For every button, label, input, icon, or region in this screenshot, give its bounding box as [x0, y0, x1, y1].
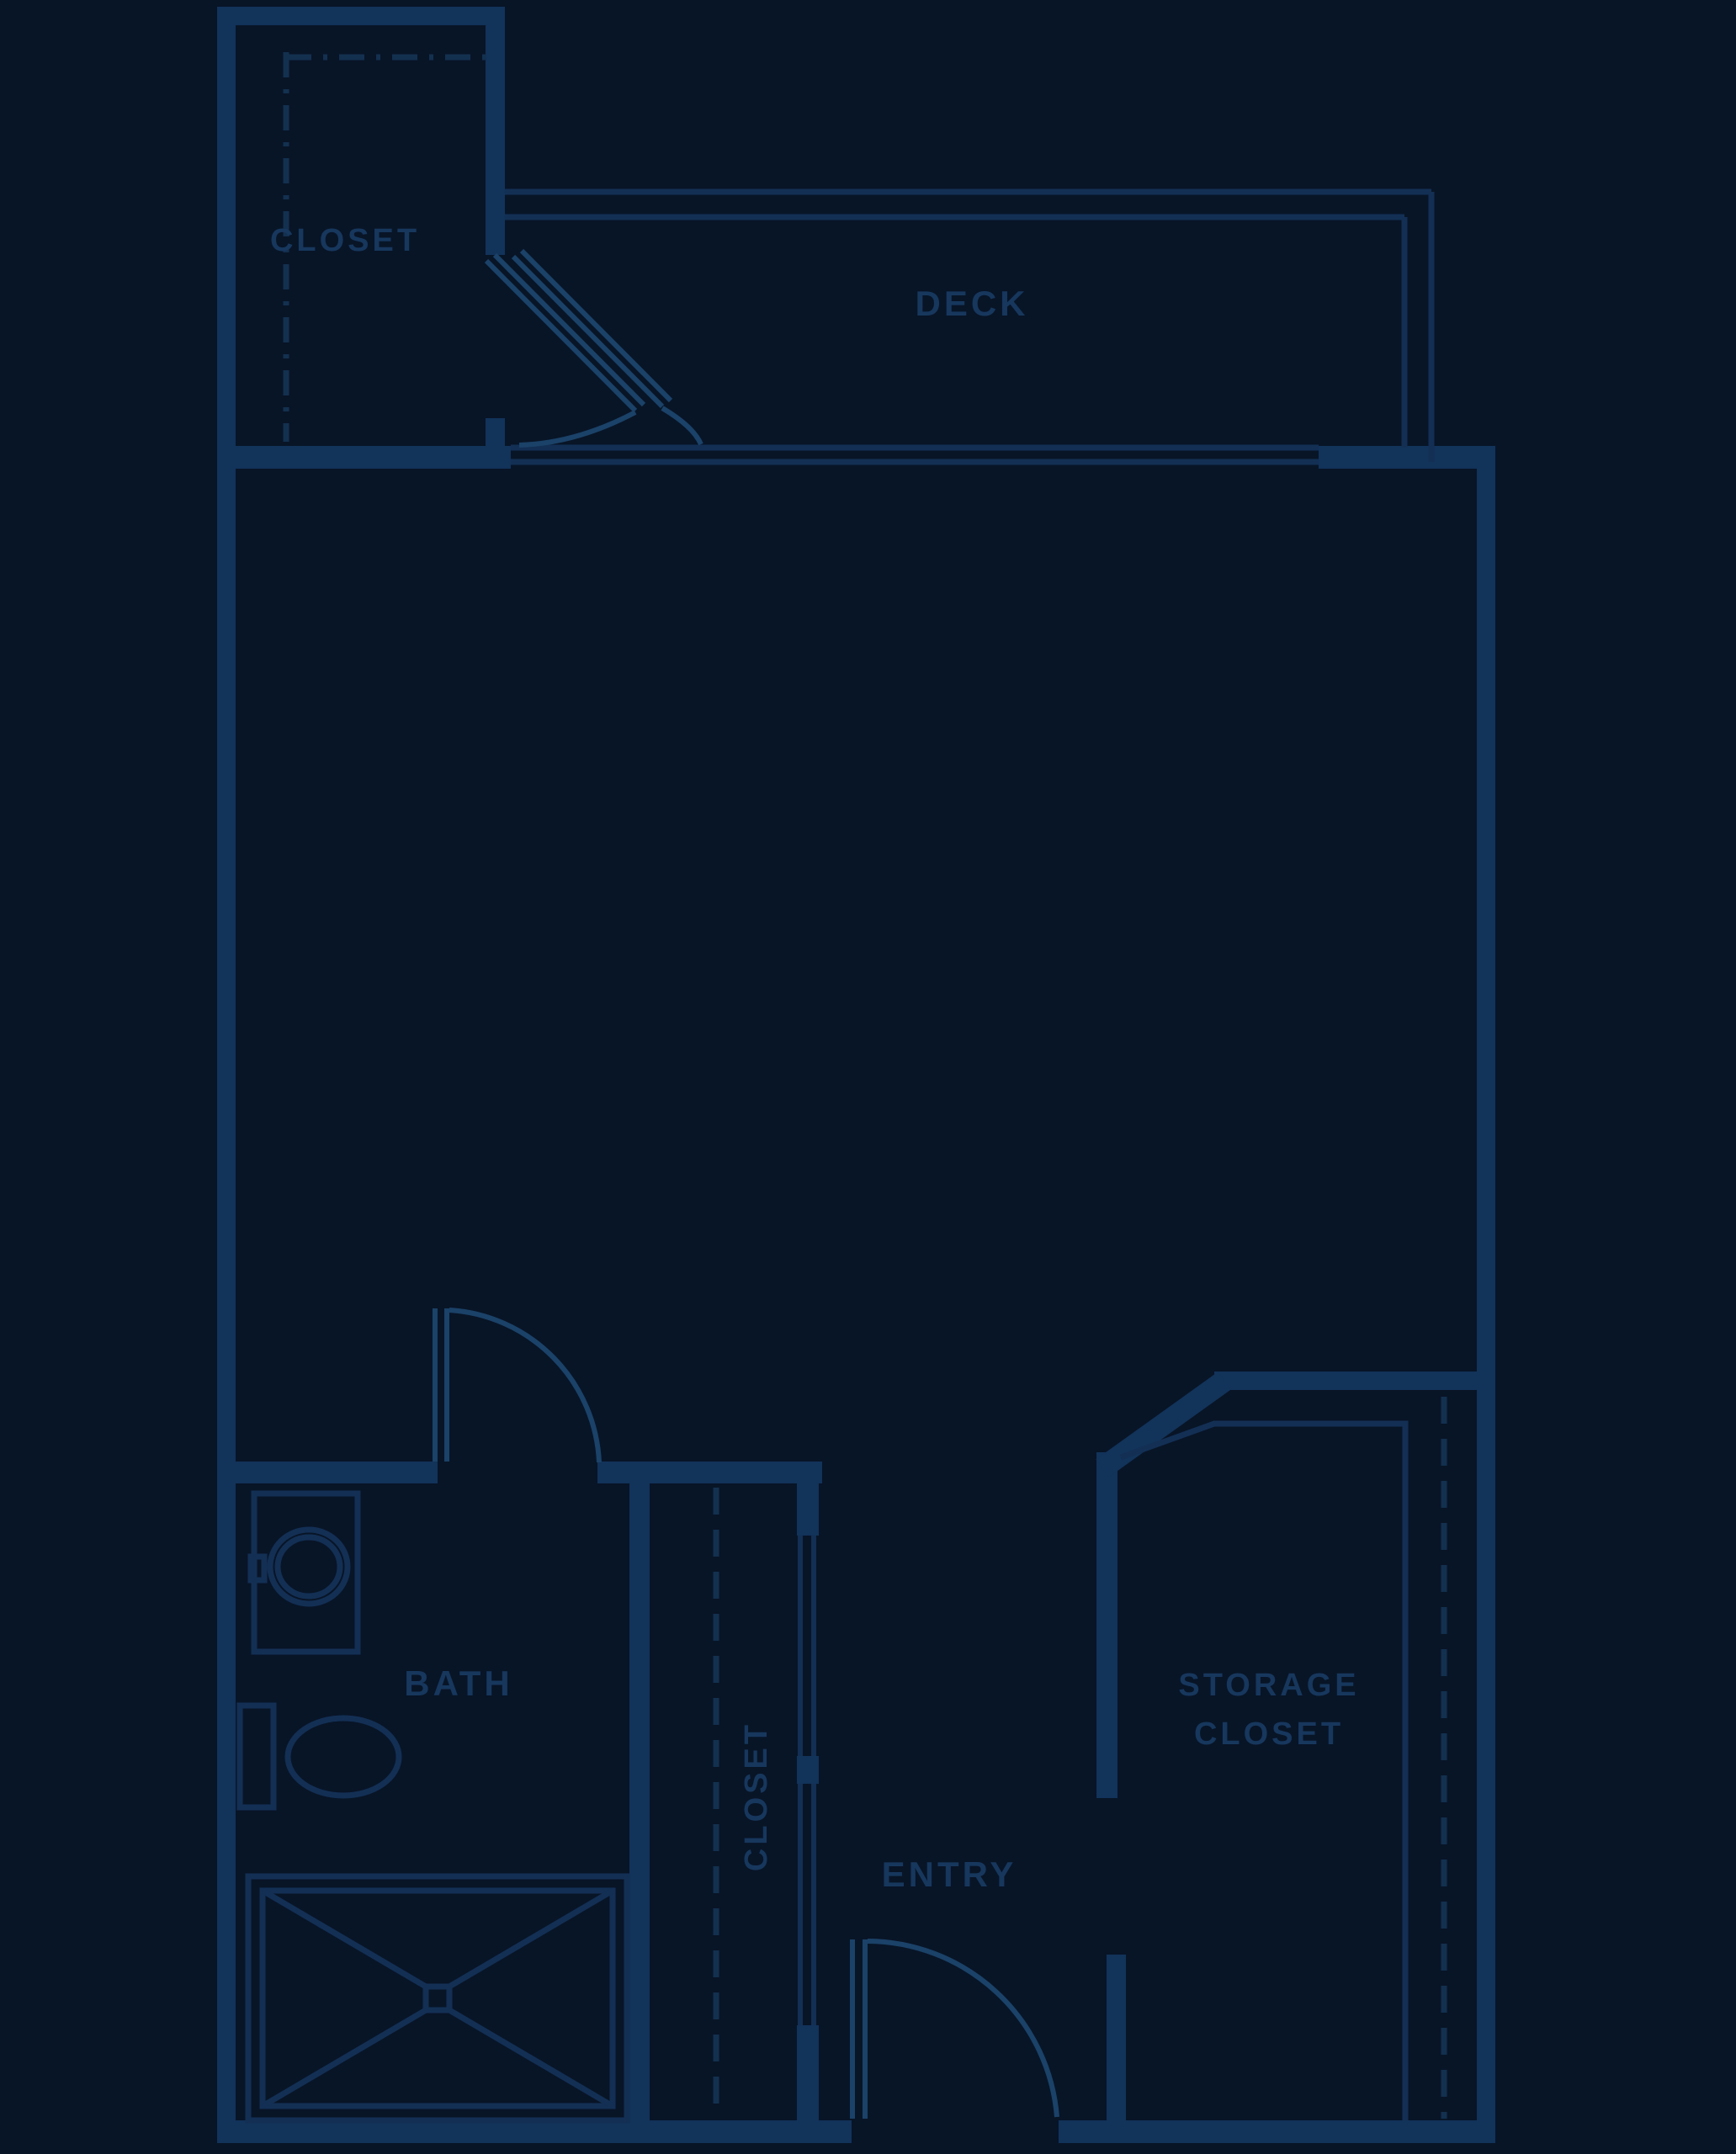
door-arc — [662, 408, 701, 444]
deck-closet-door — [486, 251, 701, 445]
storage-closet-label-line2: CLOSET — [1194, 1716, 1344, 1752]
bath-label: BATH — [404, 1663, 513, 1703]
wall-storage-left-upper — [1096, 1452, 1118, 1798]
toilet — [240, 1706, 399, 1807]
wall-closet-top — [217, 7, 505, 25]
door-arc — [449, 1310, 599, 1462]
wall-bath-hallcloset — [629, 1483, 650, 2143]
closet-rod-dashed-lines — [286, 52, 1444, 2119]
storage-closet-interior-outline — [1121, 1424, 1405, 2120]
door-arc — [868, 1941, 1057, 2117]
shower — [248, 1876, 627, 2120]
floor-plan-drawing: CLOSET DECK BATH CLOSET ENTRY STORAGE CL… — [0, 0, 1736, 2154]
wall-hallcloset-jamb-mid — [797, 1756, 819, 1784]
deck-label: DECK — [915, 284, 1028, 323]
bath-door — [435, 1308, 599, 1462]
wall-closet-right — [486, 7, 505, 255]
wall-left-exterior — [217, 7, 236, 2143]
bath-fixtures — [240, 1493, 627, 2120]
faucet — [251, 1557, 264, 1580]
closet-label: CLOSET — [270, 223, 420, 258]
toilet-tank — [240, 1706, 273, 1807]
door-arc — [519, 412, 635, 445]
sink-bowl — [270, 1530, 348, 1604]
wall-main-top-left — [217, 446, 511, 469]
wall-bath-top-left — [217, 1462, 438, 1483]
wall-right-exterior — [1477, 446, 1495, 2143]
wall-bottom-right — [1059, 2120, 1495, 2143]
hall-closet-label: CLOSET — [739, 1722, 774, 1871]
sink-vanity — [251, 1493, 358, 1652]
entry-door — [852, 1939, 1057, 2119]
wall-hallcloset-jamb-top — [797, 1483, 819, 1536]
wall-storage-top — [1214, 1371, 1477, 1390]
wall-bath-top-right — [597, 1462, 822, 1483]
wall-main-top-right — [1319, 446, 1495, 469]
walls — [217, 7, 1495, 2143]
wall-bottom-left — [217, 2120, 852, 2143]
wall-storage-left-lower — [1107, 1955, 1126, 2143]
floor-plan: CLOSET DECK BATH CLOSET ENTRY STORAGE CL… — [0, 0, 1736, 2154]
toilet-bowl — [288, 1718, 399, 1796]
deck-railing — [505, 192, 1431, 462]
entry-label: ENTRY — [882, 1854, 1017, 1894]
storage-closet-label-line1: STORAGE — [1178, 1668, 1359, 1703]
shower-drain — [426, 1987, 449, 2010]
wall-closet-right-stub — [486, 418, 505, 446]
